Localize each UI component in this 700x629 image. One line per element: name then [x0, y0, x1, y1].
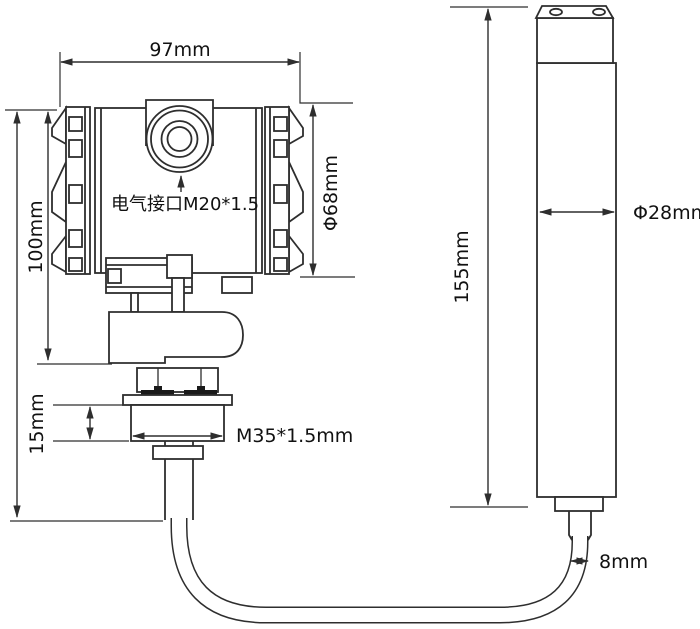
probe-body: [537, 63, 616, 497]
label-m35: M35*1.5mm: [236, 425, 353, 447]
technical-drawing-canvas: 97mm 100mm 电气接口M20*1.5 Φ68mm 15mm M35*1.…: [0, 0, 700, 629]
label-97mm: 97mm: [149, 39, 210, 61]
label-15mm: 15mm: [26, 393, 48, 454]
connection-cable: [179, 518, 580, 615]
process-connection-body: [109, 312, 243, 363]
probe-assembly: [536, 6, 616, 540]
left-cover-clamp: [52, 107, 90, 274]
label-100mm: 100mm: [25, 200, 47, 273]
probe-cap-top-face: [536, 6, 613, 18]
flange-plate: [123, 395, 232, 405]
hex-nut: [137, 368, 218, 392]
label-155mm: 155mm: [451, 230, 473, 303]
right-cover-clamp: [265, 107, 303, 274]
label-8mm: 8mm: [599, 551, 648, 573]
transmitter-assembly: [52, 100, 303, 520]
label-electrical-port: 电气接口M20*1.5: [111, 194, 259, 215]
probe-cap: [537, 18, 613, 63]
transmitter-dimension-drawing: 97mm 100mm 电气接口M20*1.5 Φ68mm 15mm M35*1.…: [0, 0, 700, 629]
electrical-port-circles: [147, 106, 213, 172]
probe-cable-neck: [569, 511, 591, 540]
label-68mm: Φ68mm: [320, 155, 342, 231]
probe-bottom-step: [555, 497, 603, 511]
tube-collar: [153, 446, 203, 459]
label-28mm: Φ28mm: [633, 202, 700, 224]
